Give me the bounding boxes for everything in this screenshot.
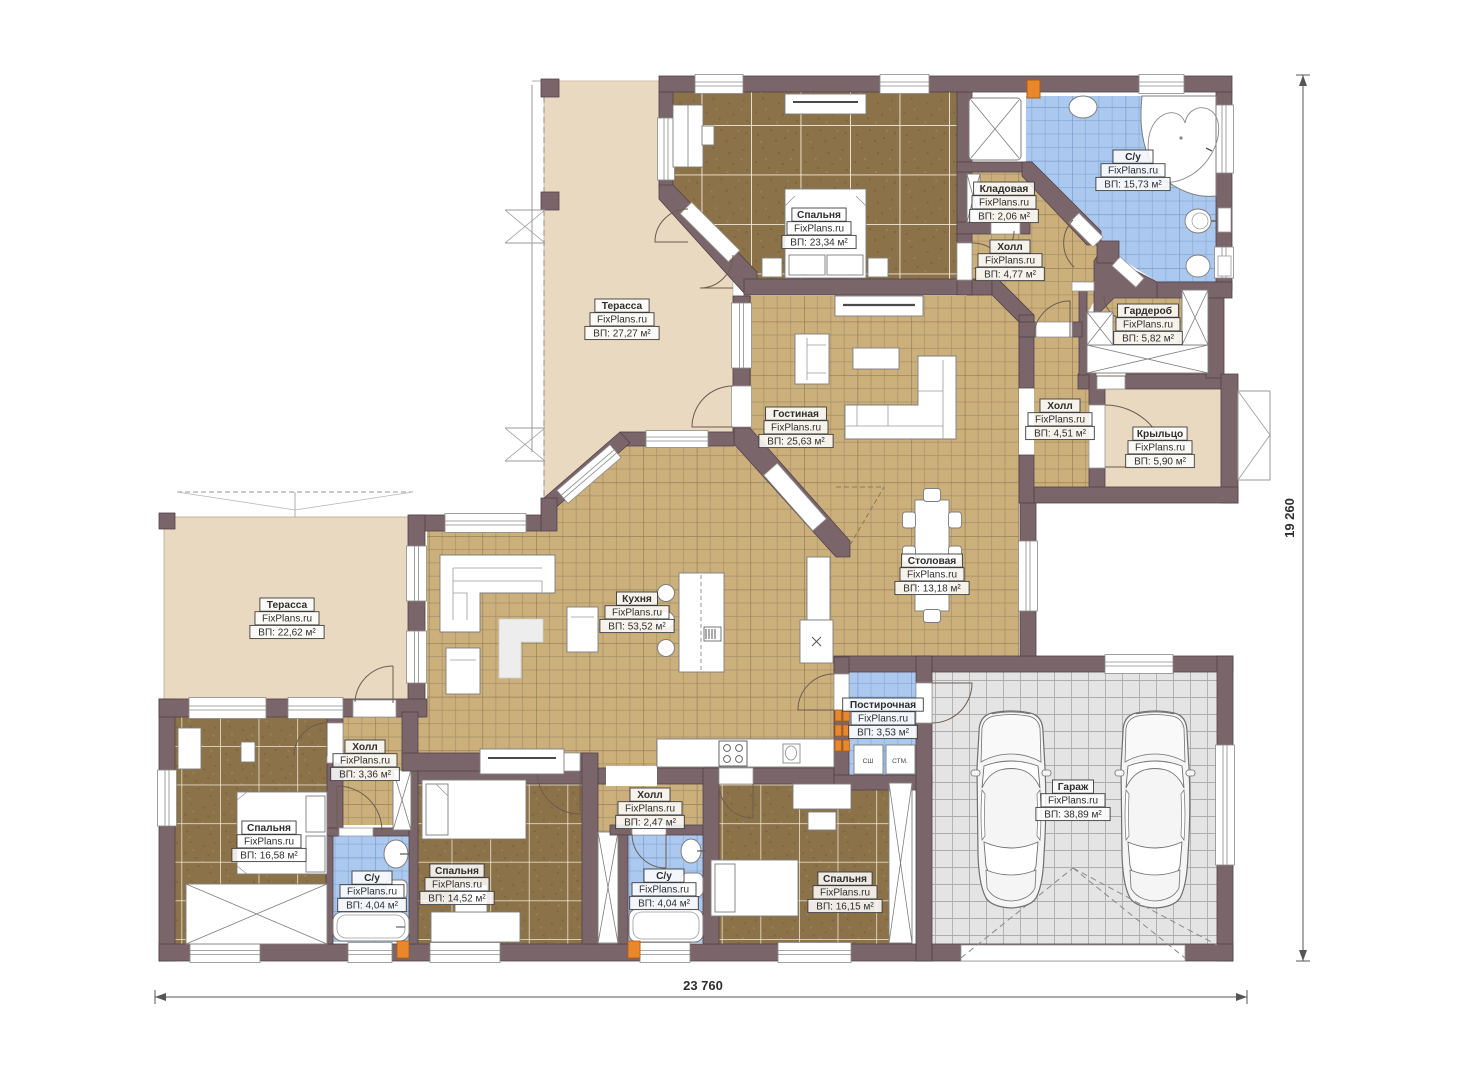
svg-text:FixPlans.ru: FixPlans.ru bbox=[979, 198, 1029, 209]
svg-text:FixPlans.ru: FixPlans.ru bbox=[625, 804, 675, 815]
svg-text:Терасса: Терасса bbox=[602, 301, 643, 312]
svg-text:FixPlans.ru: FixPlans.ru bbox=[1048, 796, 1098, 807]
svg-text:FixPlans.ru: FixPlans.ru bbox=[340, 756, 390, 767]
svg-text:FixPlans.ru: FixPlans.ru bbox=[612, 608, 662, 619]
svg-text:ВП: 23,34 м²: ВП: 23,34 м² bbox=[790, 237, 848, 248]
svg-text:FixPlans.ru: FixPlans.ru bbox=[1035, 415, 1085, 426]
svg-text:FixPlans.ru: FixPlans.ru bbox=[262, 614, 312, 625]
svg-text:FixPlans.ru: FixPlans.ru bbox=[347, 887, 397, 898]
svg-text:ВП: 4,04 м²: ВП: 4,04 м² bbox=[638, 898, 691, 909]
svg-text:Кладовая: Кладовая bbox=[980, 184, 1029, 195]
svg-text:СТМ.: СТМ. bbox=[892, 758, 908, 765]
svg-text:ВП: 15,73 м²: ВП: 15,73 м² bbox=[1104, 179, 1162, 190]
svg-text:С/у: С/у bbox=[364, 873, 380, 884]
svg-text:FixPlans.ru: FixPlans.ru bbox=[907, 570, 957, 581]
svg-text:FixPlans.ru: FixPlans.ru bbox=[639, 885, 689, 896]
svg-text:FixPlans.ru: FixPlans.ru bbox=[820, 888, 870, 899]
svg-text:Спальня: Спальня bbox=[247, 823, 291, 834]
svg-text:FixPlans.ru: FixPlans.ru bbox=[597, 315, 647, 326]
svg-text:ВП: 16,15 м²: ВП: 16,15 м² bbox=[816, 901, 874, 912]
svg-text:ВП: 38,89 м²: ВП: 38,89 м² bbox=[1044, 809, 1102, 820]
svg-text:ВП: 5,82 м²: ВП: 5,82 м² bbox=[1122, 333, 1175, 344]
svg-text:СШ: СШ bbox=[863, 758, 874, 765]
svg-text:19 260: 19 260 bbox=[1282, 498, 1297, 538]
svg-text:Кухня: Кухня bbox=[622, 594, 652, 605]
svg-text:ВП: 53,52 м²: ВП: 53,52 м² bbox=[608, 621, 666, 632]
svg-text:FixPlans.ru: FixPlans.ru bbox=[794, 224, 844, 235]
svg-text:ВП: 5,90 м²: ВП: 5,90 м² bbox=[1134, 456, 1187, 467]
svg-text:Холл: Холл bbox=[637, 790, 663, 801]
svg-text:Спальня: Спальня bbox=[823, 874, 867, 885]
svg-text:ВП: 3,53 м²: ВП: 3,53 м² bbox=[857, 727, 910, 738]
svg-text:ВП: 3,36 м²: ВП: 3,36 м² bbox=[339, 769, 392, 780]
svg-text:ВП: 4,51 м²: ВП: 4,51 м² bbox=[1034, 428, 1087, 439]
svg-text:Крыльцо: Крыльцо bbox=[1137, 429, 1183, 440]
svg-text:Терасса: Терасса bbox=[267, 600, 308, 611]
svg-text:Спальня: Спальня bbox=[435, 866, 479, 877]
svg-text:Постирочная: Постирочная bbox=[850, 700, 916, 711]
svg-text:Гостиная: Гостиная bbox=[773, 409, 819, 420]
svg-text:Столовая: Столовая bbox=[908, 556, 957, 567]
svg-text:ВП: 13,18 м²: ВП: 13,18 м² bbox=[903, 583, 961, 594]
svg-text:С/у: С/у bbox=[1125, 152, 1141, 163]
svg-text:Гараж: Гараж bbox=[1058, 782, 1089, 793]
svg-text:FixPlans.ru: FixPlans.ru bbox=[244, 837, 294, 848]
svg-text:ВП: 22,62 м²: ВП: 22,62 м² bbox=[258, 627, 316, 638]
svg-text:ВП: 16,58 м²: ВП: 16,58 м² bbox=[240, 850, 298, 861]
svg-text:FixPlans.ru: FixPlans.ru bbox=[1123, 320, 1173, 331]
svg-text:Холл: Холл bbox=[997, 242, 1023, 253]
svg-text:FixPlans.ru: FixPlans.ru bbox=[858, 714, 908, 725]
svg-text:ВП: 4,77 м²: ВП: 4,77 м² bbox=[984, 269, 1037, 280]
svg-text:ВП: 14,52 м²: ВП: 14,52 м² bbox=[428, 893, 486, 904]
svg-text:FixPlans.ru: FixPlans.ru bbox=[1135, 443, 1185, 454]
svg-text:FixPlans.ru: FixPlans.ru bbox=[985, 256, 1035, 267]
svg-text:ВП: 25,63 м²: ВП: 25,63 м² bbox=[767, 436, 825, 447]
svg-text:Холл: Холл bbox=[352, 742, 378, 753]
svg-text:ВП: 2,47 м²: ВП: 2,47 м² bbox=[624, 817, 677, 828]
svg-text:FixPlans.ru: FixPlans.ru bbox=[432, 880, 482, 891]
svg-text:Холл: Холл bbox=[1047, 401, 1073, 412]
svg-text:FixPlans.ru: FixPlans.ru bbox=[1108, 166, 1158, 177]
svg-text:FixPlans.ru: FixPlans.ru bbox=[771, 423, 821, 434]
svg-text:Спальня: Спальня bbox=[797, 210, 841, 221]
svg-text:С/у: С/у bbox=[656, 871, 672, 882]
svg-text:Гардероб: Гардероб bbox=[1124, 305, 1172, 317]
svg-text:ВП: 4,04 м²: ВП: 4,04 м² bbox=[346, 900, 399, 911]
svg-text:ВП: 2,06 м²: ВП: 2,06 м² bbox=[978, 211, 1031, 222]
svg-text:23 760: 23 760 bbox=[683, 978, 723, 993]
svg-text:ВП: 27,27 м²: ВП: 27,27 м² bbox=[593, 328, 651, 339]
